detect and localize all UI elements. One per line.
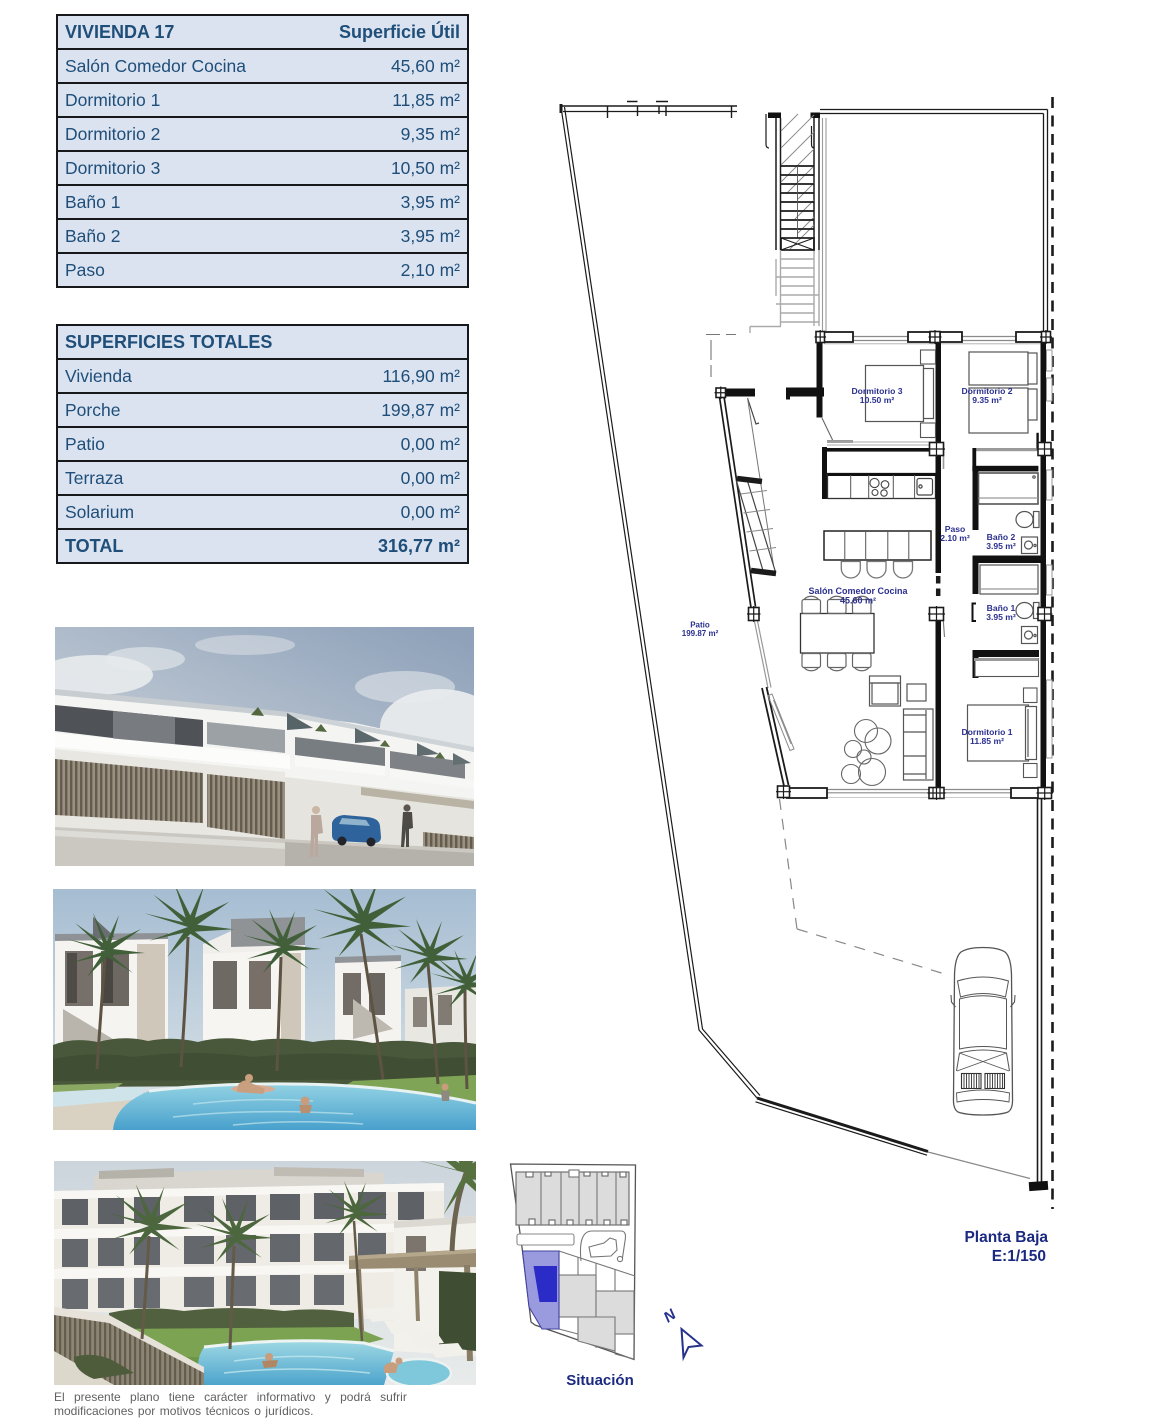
svg-text:3.95 m²: 3.95 m² xyxy=(986,612,1016,622)
svg-text:2.10 m²: 2.10 m² xyxy=(940,533,970,543)
svg-text:11.85 m²: 11.85 m² xyxy=(970,736,1004,746)
svg-text:E:1/150: E:1/150 xyxy=(992,1248,1046,1265)
svg-text:45.60 m²: 45.60 m² xyxy=(840,596,876,606)
svg-text:199.87 m²: 199.87 m² xyxy=(682,629,719,638)
svg-text:Planta Baja: Planta Baja xyxy=(964,1229,1048,1246)
svg-text:N: N xyxy=(661,1305,681,1326)
svg-text:Salón Comedor Cocina: Salón Comedor Cocina xyxy=(808,586,908,596)
svg-text:3.95 m²: 3.95 m² xyxy=(986,541,1016,551)
svg-text:10.50 m²: 10.50 m² xyxy=(860,395,895,405)
svg-text:Situación: Situación xyxy=(566,1372,634,1389)
svg-text:9.35 m²: 9.35 m² xyxy=(972,395,1002,405)
